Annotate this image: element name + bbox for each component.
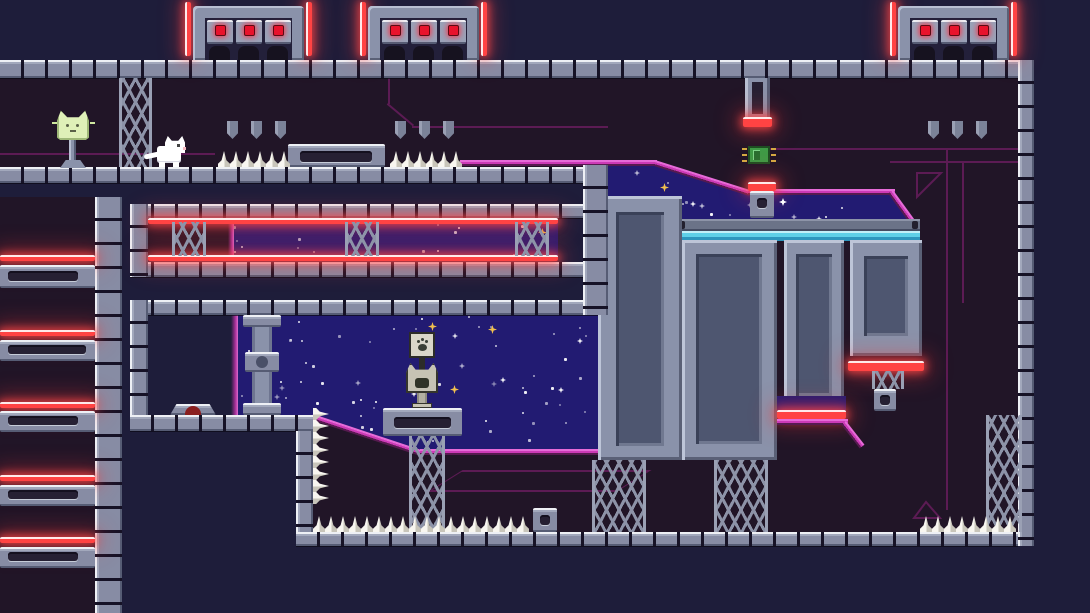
spike — [313, 408, 329, 420]
background-star — [236, 240, 238, 242]
background-star — [369, 341, 371, 343]
spike — [505, 516, 517, 532]
background-star — [478, 326, 480, 328]
door-arch — [238, 46, 259, 60]
background-star — [355, 380, 361, 386]
spike-row — [390, 151, 462, 167]
background-star — [373, 407, 375, 409]
background-star — [305, 362, 307, 364]
background-star — [533, 375, 535, 377]
background-star — [312, 365, 315, 368]
background-star — [393, 328, 395, 330]
left-ledge — [0, 340, 95, 361]
ceiling-pipe — [745, 78, 770, 117]
background-star — [489, 430, 492, 433]
room-top-platform — [130, 300, 608, 315]
spike — [944, 516, 956, 532]
background-star — [468, 316, 470, 318]
door-neon-left — [360, 2, 366, 56]
door-cell — [941, 20, 967, 44]
support-truss — [592, 460, 646, 532]
corridor-left-cap — [130, 204, 148, 277]
magenta-border — [777, 419, 848, 425]
spike — [313, 480, 329, 492]
circuit-chip-collectible — [748, 146, 770, 164]
circuit-line — [770, 148, 1018, 150]
door-cell — [236, 20, 262, 44]
background-star — [360, 415, 362, 417]
paw-sign — [409, 332, 435, 358]
spike — [266, 151, 278, 167]
background-star — [458, 227, 460, 229]
spike — [445, 516, 457, 532]
door-neon-right — [306, 2, 312, 56]
background-star — [321, 382, 324, 385]
circuit-line — [946, 150, 948, 510]
spike — [450, 151, 462, 167]
door-cell — [912, 20, 938, 44]
checkpoint-beacon — [54, 108, 94, 168]
spike — [361, 516, 373, 532]
door-arch — [384, 46, 405, 60]
background-star — [710, 213, 713, 216]
door-cell — [207, 20, 233, 44]
left-ledge — [0, 547, 95, 568]
spike — [218, 151, 230, 167]
door-arch — [442, 46, 463, 60]
background-star — [452, 333, 458, 339]
wall-panel — [850, 240, 922, 356]
left-ledge-laser — [0, 255, 95, 261]
background-star — [564, 358, 567, 361]
pillar-base — [243, 403, 281, 415]
background-star — [298, 321, 300, 323]
left-ledge-laser — [0, 402, 95, 408]
chip-pins — [771, 148, 776, 162]
corridor-brace — [172, 222, 206, 256]
red-laser-cap — [743, 117, 772, 127]
door-indicator-light — [920, 25, 931, 36]
door-indicator-light — [273, 25, 284, 36]
spike — [438, 151, 450, 167]
background-star — [459, 363, 465, 369]
background-star — [298, 238, 301, 241]
raised-ledge — [288, 144, 385, 167]
spike — [409, 516, 421, 532]
door-cell — [440, 20, 466, 44]
corridor-brace — [345, 222, 379, 256]
background-star — [313, 251, 315, 253]
background-star — [491, 381, 497, 387]
spike — [313, 432, 329, 444]
background-star — [289, 339, 292, 342]
magenta-border — [460, 160, 657, 166]
spike — [313, 456, 329, 468]
spike — [325, 516, 337, 532]
spike — [421, 516, 433, 532]
background-star — [316, 402, 319, 405]
spike — [278, 151, 290, 167]
spike — [932, 516, 944, 532]
left-ledge-laser — [0, 537, 95, 543]
ceiling-platform — [0, 60, 1018, 78]
red-laser-bar — [748, 182, 776, 191]
game-viewport[interactable] — [0, 0, 1090, 613]
background-star — [437, 250, 439, 252]
magenta-fade-edge — [231, 315, 238, 415]
mid-wall-column — [583, 165, 608, 315]
wall-panel — [682, 240, 777, 460]
checkpoint-head — [57, 110, 89, 140]
spike-row — [313, 516, 529, 532]
spike — [493, 516, 505, 532]
background-star — [690, 201, 696, 207]
door-indicator-light — [448, 25, 459, 36]
spike — [230, 151, 242, 167]
spike — [313, 444, 329, 456]
spike — [481, 516, 493, 532]
door-neon-left — [890, 2, 896, 56]
door-arch — [267, 46, 288, 60]
spike — [337, 516, 349, 532]
background-star — [301, 340, 303, 342]
background-star — [577, 338, 583, 344]
spike — [397, 516, 409, 532]
wall-panel — [784, 240, 844, 410]
background-star — [422, 250, 425, 253]
spike — [469, 516, 481, 532]
spike — [457, 516, 469, 532]
door-arch — [413, 46, 434, 60]
spike — [414, 151, 426, 167]
background-star — [454, 231, 457, 234]
support-truss — [714, 460, 768, 532]
door-neon-right — [481, 2, 487, 56]
door-arch — [972, 46, 993, 60]
background-star — [532, 422, 535, 425]
left-ledge-laser — [0, 330, 95, 336]
hanging-block — [874, 389, 896, 411]
exit-door-3 — [890, 0, 1017, 60]
spike — [992, 516, 1004, 532]
background-star — [300, 381, 302, 383]
room-floor — [130, 415, 313, 431]
spike — [426, 151, 438, 167]
conveyor-top-strip — [677, 219, 920, 231]
background-star — [559, 404, 561, 406]
starfield-sliver — [777, 396, 846, 410]
spike — [254, 151, 266, 167]
ramp-device — [170, 404, 216, 415]
spike — [242, 151, 254, 167]
spike-column — [313, 408, 329, 504]
background-star — [437, 224, 439, 226]
spike — [920, 516, 932, 532]
background-star — [370, 428, 373, 431]
background-star — [338, 335, 341, 338]
spike — [402, 151, 414, 167]
left-ledge-laser — [0, 475, 95, 481]
background-star — [280, 381, 282, 383]
statue-platform — [383, 408, 462, 436]
spike — [433, 516, 445, 532]
spike — [1004, 516, 1016, 532]
door-indicator-light — [949, 25, 960, 36]
spike — [313, 516, 325, 532]
door-indicator-light — [244, 25, 255, 36]
background-star — [285, 397, 287, 399]
left-ledge — [0, 265, 95, 288]
background-star — [685, 201, 688, 204]
left-ledge — [0, 485, 95, 506]
spike — [313, 420, 329, 432]
background-star — [584, 411, 586, 413]
background-star — [524, 391, 527, 394]
magenta-border — [420, 449, 600, 455]
bottom-floor — [296, 532, 1018, 546]
lower-left-wall — [296, 431, 313, 532]
background-star — [234, 251, 236, 253]
background-star — [585, 335, 587, 337]
door-cell — [265, 20, 291, 44]
spike — [313, 492, 329, 504]
background-star — [825, 216, 827, 218]
door-indicator-light — [978, 25, 989, 36]
circuit-line — [890, 161, 1018, 163]
background-star — [279, 385, 285, 391]
background-star — [375, 401, 377, 403]
player-cat — [144, 136, 188, 168]
wall-panel — [598, 196, 682, 460]
pillar-hub — [245, 352, 279, 372]
background-star — [500, 377, 506, 383]
background-star — [274, 394, 280, 400]
background-star — [297, 247, 299, 249]
corridor-top — [130, 204, 595, 218]
background-star — [485, 420, 487, 422]
door-arch — [209, 46, 230, 60]
circuit-line — [388, 78, 390, 104]
door-neon-right — [1011, 2, 1017, 56]
spike — [956, 516, 968, 532]
door-indicator-light — [419, 25, 430, 36]
background-star — [699, 203, 705, 209]
background-star — [558, 387, 564, 393]
background-star — [634, 170, 640, 176]
corridor-brace — [515, 222, 549, 256]
background-star — [241, 246, 243, 248]
door-cell — [382, 20, 408, 44]
spike — [313, 468, 329, 480]
background-star — [421, 318, 423, 320]
background-star — [553, 333, 555, 335]
red-laser-bar — [848, 361, 924, 371]
support-truss — [986, 415, 1022, 532]
background-star — [545, 402, 548, 405]
background-star — [522, 412, 524, 414]
door-arch — [943, 46, 964, 60]
door-neon-left — [185, 2, 191, 56]
spike-row — [920, 516, 1016, 532]
background-star — [528, 439, 531, 442]
background-star — [579, 327, 581, 329]
circuit-triangle-decor — [914, 170, 944, 200]
door-cell — [970, 20, 996, 44]
spike — [349, 516, 361, 532]
background-star — [361, 426, 364, 429]
left-ledge — [0, 411, 95, 432]
room-left-wall — [130, 300, 148, 431]
left-wall-column — [95, 197, 122, 613]
magenta-fade-edge — [228, 222, 234, 258]
background-star — [495, 345, 497, 347]
door-arch — [914, 46, 935, 60]
exit-door-2 — [360, 0, 487, 60]
pillar-cap — [243, 315, 281, 327]
spike — [980, 516, 992, 532]
red-laser-bar — [777, 410, 846, 419]
circuit-line — [412, 126, 608, 128]
corridor-bottom — [130, 262, 595, 277]
background-star — [667, 182, 669, 184]
door-indicator-light — [390, 25, 401, 36]
background-star — [551, 387, 554, 390]
floating-block — [750, 191, 774, 218]
background-star — [682, 203, 684, 205]
background-star — [522, 387, 524, 389]
background-star — [729, 214, 731, 216]
background-star — [360, 399, 362, 401]
upper-floor-platform — [0, 167, 608, 183]
background-star — [565, 422, 567, 424]
spike — [390, 151, 402, 167]
circuit-line — [962, 163, 964, 303]
conveyor-roller — [912, 221, 918, 229]
cat-statue — [406, 363, 438, 408]
background-star — [352, 401, 355, 404]
hanging-truss — [872, 371, 904, 389]
background-star — [241, 395, 243, 397]
spike — [385, 516, 397, 532]
background-star — [841, 207, 843, 209]
floor-block — [533, 508, 557, 532]
spike-row — [218, 151, 290, 167]
background-star — [579, 377, 582, 380]
exit-door-1 — [185, 0, 312, 60]
door-cell — [411, 20, 437, 44]
spike — [968, 516, 980, 532]
spike — [517, 516, 529, 532]
door-indicator-light — [215, 25, 226, 36]
spike — [373, 516, 385, 532]
chip-pins — [742, 148, 747, 162]
background-star — [438, 383, 441, 386]
background-star — [415, 328, 417, 330]
